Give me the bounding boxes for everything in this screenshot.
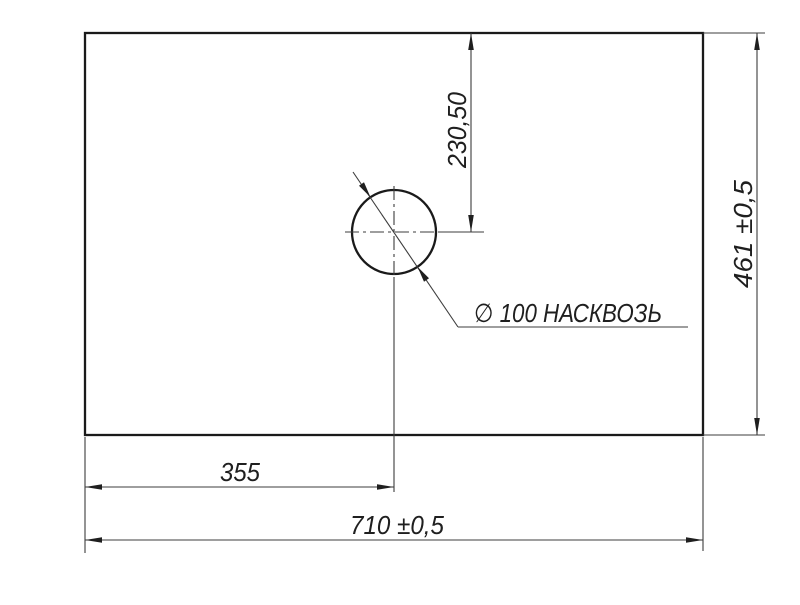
arrowhead-left [85,484,102,490]
dimension-value: 710 ±0,5 [350,510,444,540]
dimension-value: 461 ±0,5 [728,179,758,288]
arrowhead-left [85,537,102,543]
arrowhead-down [468,215,474,232]
arrowhead-up [468,33,474,50]
hole-callout-label: ∅ 100 НАСКВОЗЬ [474,298,662,328]
dimension-value: 230,50 [442,91,472,168]
arrowhead-right [686,537,703,543]
arrowhead-right [377,484,394,490]
dimension-hole-from-left: 355 [85,437,394,553]
hole-callout: ∅ 100 НАСКВОЗЬ [353,172,688,328]
technical-drawing: 230,50 461 ±0,5 355 710 ±0,5 [0,0,800,605]
dimension-panel-height: 461 ±0,5 [703,33,765,435]
arrowhead-up [754,33,760,50]
hole-centerlines [345,186,484,492]
dimension-value: 355 [220,457,260,487]
leader-arrowhead-lower [418,267,430,282]
drawing-sheet: 230,50 461 ±0,5 355 710 ±0,5 [0,0,800,605]
arrowhead-down [754,418,760,435]
leader-arrowhead-upper [359,182,371,197]
dimension-hole-from-top: 230,50 [442,33,474,232]
